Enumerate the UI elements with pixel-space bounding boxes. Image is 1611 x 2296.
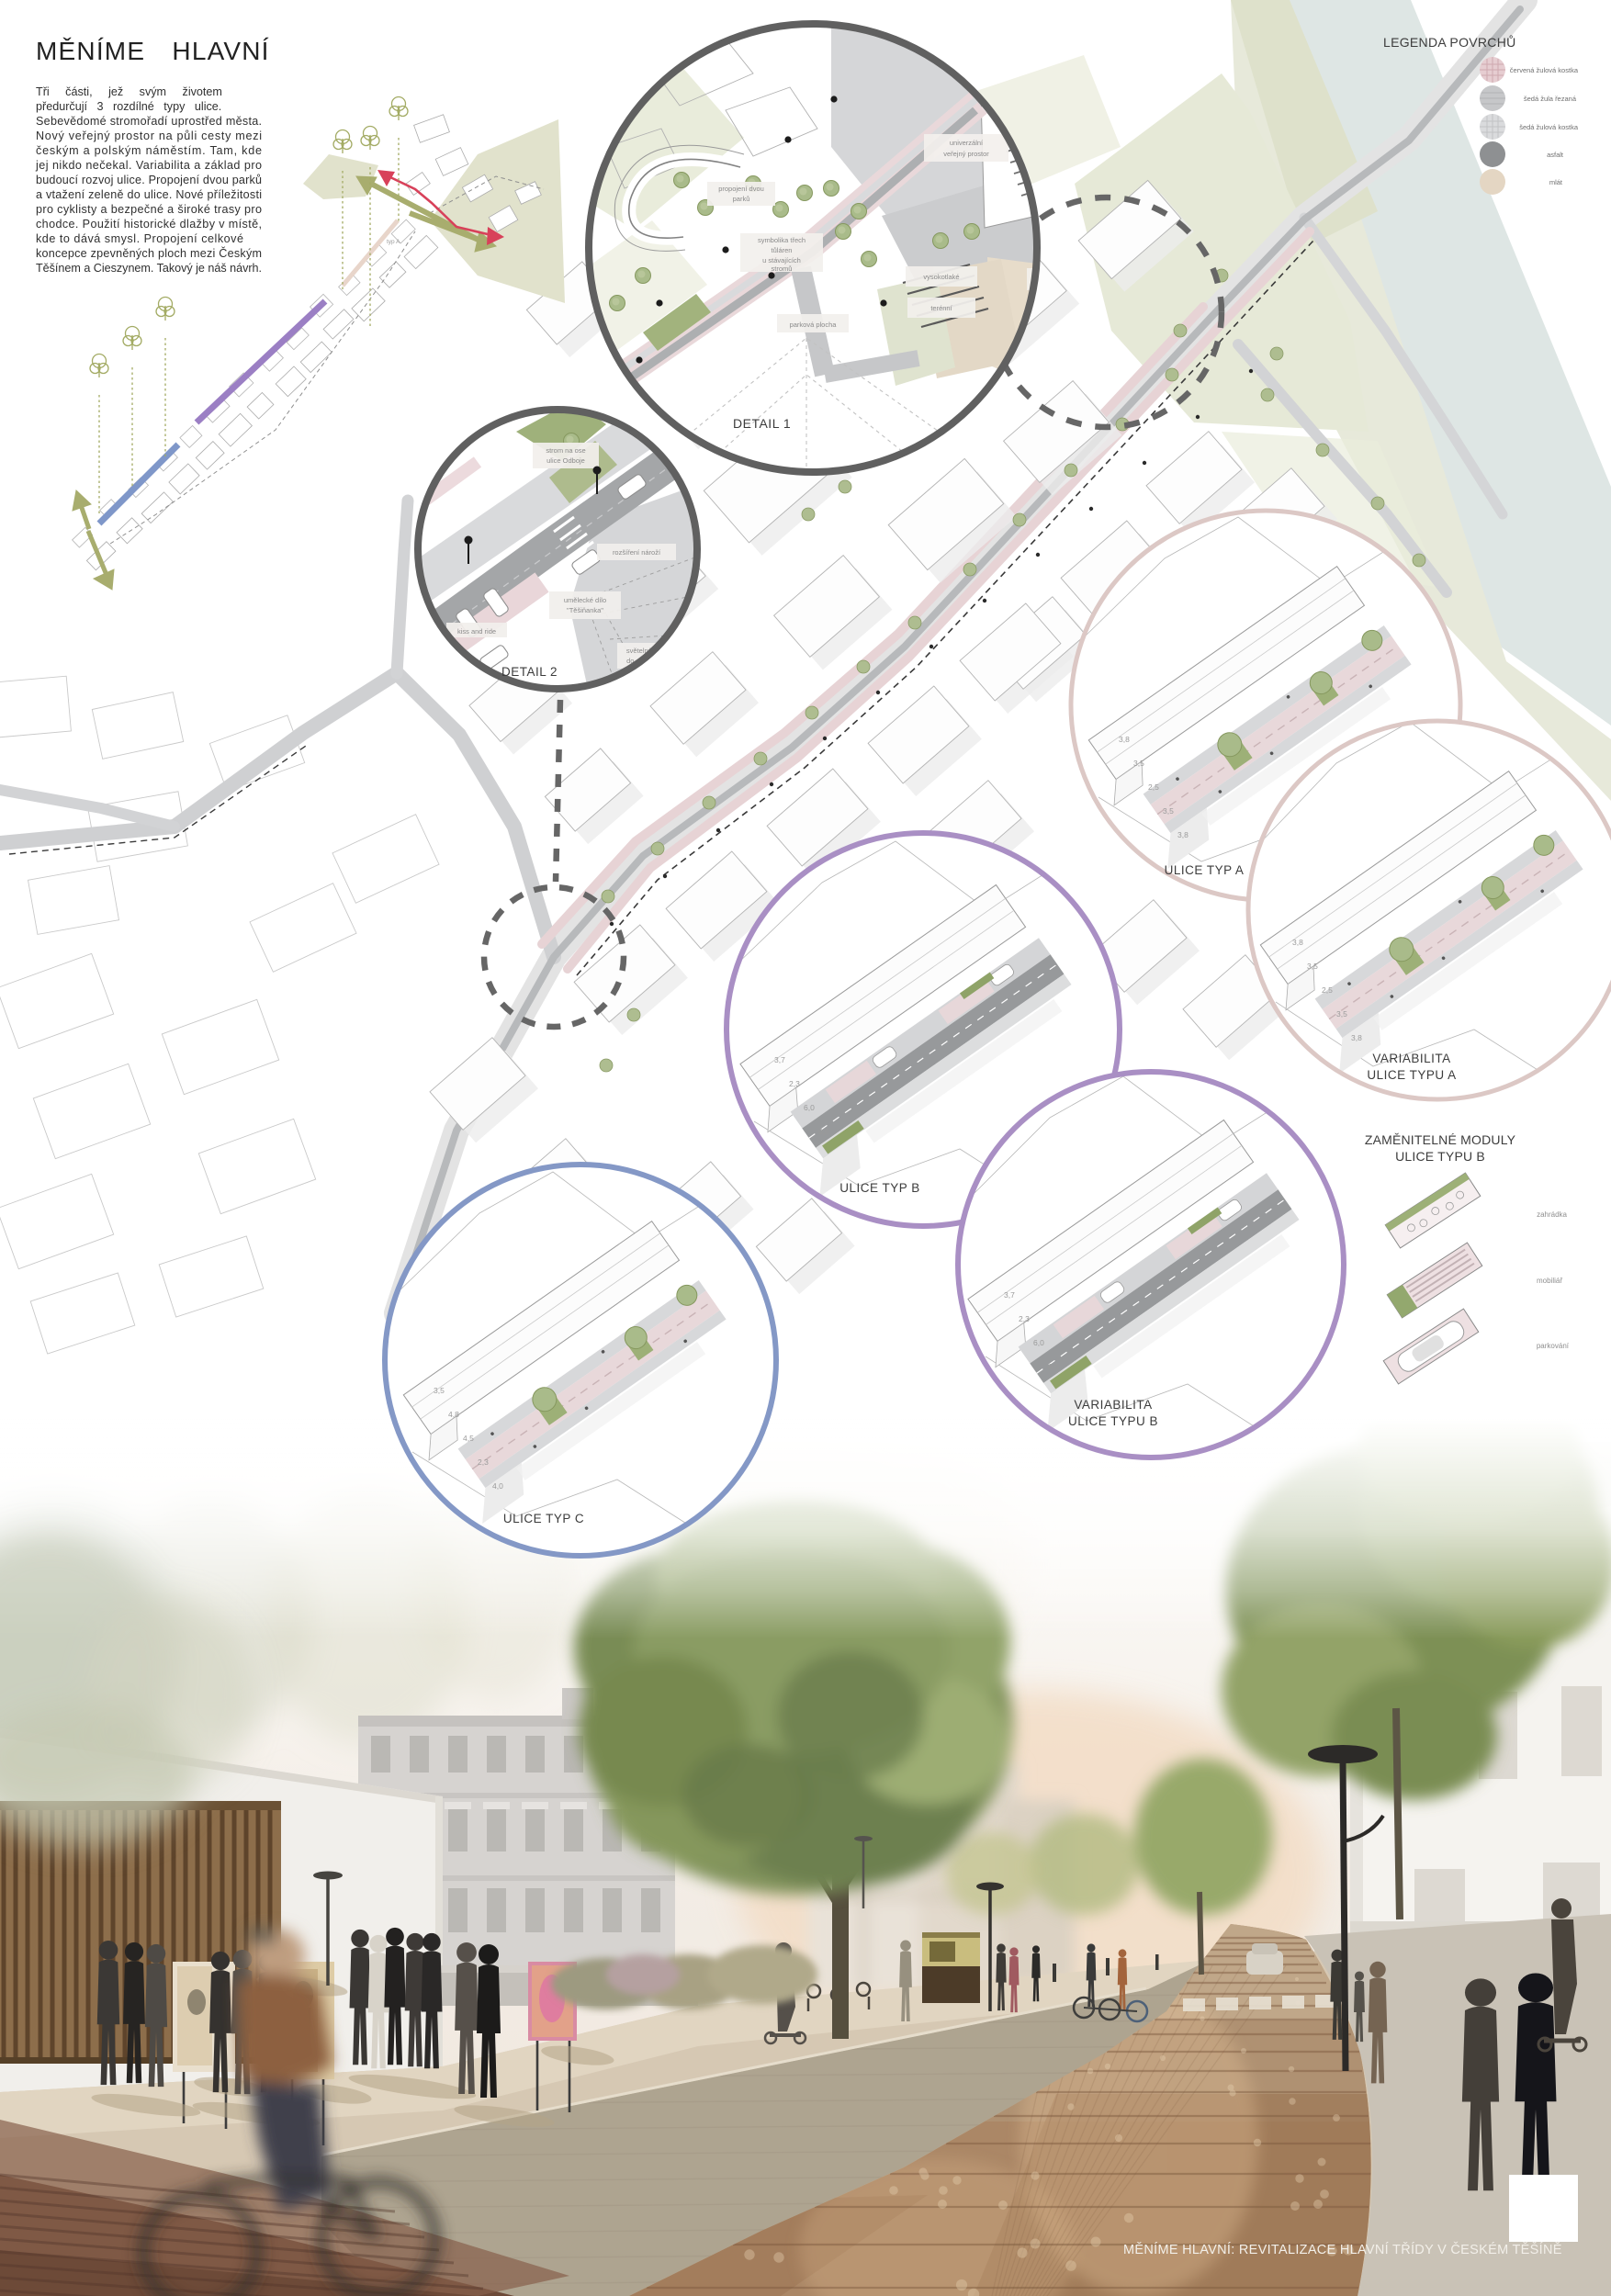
svg-text:ZAMĚNITELNÉ MODULY: ZAMĚNITELNÉ MODULY <box>1365 1132 1516 1147</box>
svg-text:typ A: typ A <box>387 239 400 245</box>
svg-text:a vtažení zeleně do ulice. Nov: a vtažení zeleně do ulice. Nové příležit… <box>36 188 262 201</box>
svg-text:6,0: 6,0 <box>818 1127 829 1136</box>
svg-text:ULICE TYPU B: ULICE TYPU B <box>1395 1149 1485 1164</box>
svg-text:chodce. Použití historické dla: chodce. Použití historické dlažby v míst… <box>36 218 262 231</box>
svg-text:u stávajících: u stávajících <box>762 256 801 264</box>
svg-text:4,0: 4,0 <box>492 1481 503 1491</box>
svg-text:umělecké dílo: umělecké dílo <box>564 596 606 604</box>
svg-text:budoucí rozvoj ulice. Propojen: budoucí rozvoj ulice. Propojení dvou par… <box>36 174 262 186</box>
svg-text:zahrádka: zahrádka <box>1537 1210 1567 1219</box>
svg-text:jej nikdo nečekal. Variabilita: jej nikdo nečekal. Variabilita a základ … <box>35 159 262 172</box>
svg-text:2,3: 2,3 <box>478 1458 489 1467</box>
svg-text:MĚNÍME HLAVNÍ: REVITALIZACE HL: MĚNÍME HLAVNÍ: REVITALIZACE HLAVNÍ TŘÍDY… <box>1123 2242 1562 2257</box>
svg-text:3,5: 3,5 <box>434 1386 445 1395</box>
svg-text:2,5: 2,5 <box>1322 985 1333 995</box>
svg-text:terénní: terénní <box>930 304 952 312</box>
svg-text:ulice Odboje: ulice Odboje <box>546 456 585 465</box>
svg-text:4,8: 4,8 <box>448 1410 459 1419</box>
svg-text:tůláren: tůláren <box>772 246 793 254</box>
svg-text:VARIABILITA: VARIABILITA <box>1074 1398 1152 1412</box>
svg-text:kde to dává smysl. Propojení c: kde to dává smysl. Propojení celkové <box>36 232 243 245</box>
svg-text:"Těšiňanka": "Těšiňanka" <box>567 606 603 614</box>
svg-text:6,0: 6,0 <box>1048 1362 1059 1371</box>
svg-text:3,7: 3,7 <box>774 1055 785 1064</box>
svg-text:3,5: 3,5 <box>1133 759 1144 768</box>
svg-text:asfalt: asfalt <box>1547 151 1564 159</box>
svg-text:3,8: 3,8 <box>1177 830 1189 839</box>
svg-text:ULICE TYP A: ULICE TYP A <box>1165 863 1245 877</box>
svg-text:DETAIL 1: DETAIL 1 <box>733 416 791 431</box>
svg-text:mlát: mlát <box>1549 178 1563 186</box>
svg-text:předurčují 3 rozdílné ty: předurčují 3 rozdílné typy ulice. <box>36 100 221 113</box>
svg-text:šedá žulová kostka: šedá žulová kostka <box>1519 123 1579 131</box>
svg-text:DETAIL 2: DETAIL 2 <box>501 665 558 679</box>
svg-text:univerzální: univerzální <box>950 139 984 147</box>
svg-text:kiss and ride: kiss and ride <box>457 627 496 636</box>
svg-text:veřejný prostor: veřejný prostor <box>943 150 989 158</box>
svg-text:2,3: 2,3 <box>789 1079 800 1088</box>
svg-text:rozšíření nároží: rozšíření nároží <box>613 548 661 557</box>
svg-text:koncepce zpevněných ploch mezi: koncepce zpevněných ploch mezi Českým <box>36 246 262 260</box>
svg-text:ULICE TYP B: ULICE TYP B <box>839 1181 920 1195</box>
svg-text:6,0: 6,0 <box>804 1103 815 1112</box>
svg-text:Sebevědomé stromořadí uprostře: Sebevědomé stromořadí uprostřed města. <box>36 115 262 128</box>
svg-text:3,5: 3,5 <box>1163 806 1174 816</box>
svg-text:parková plocha: parková plocha <box>790 321 838 329</box>
svg-text:červená žulová kostka: červená žulová kostka <box>1510 66 1579 74</box>
svg-text:6,0: 6,0 <box>1033 1338 1044 1347</box>
svg-text:3,5: 3,5 <box>1336 1009 1347 1019</box>
svg-text:MĚNÍME HLAVNÍ: MĚNÍME HLAVNÍ <box>36 37 270 65</box>
svg-text:3,5: 3,5 <box>1307 962 1318 971</box>
svg-text:Těšínem a Cieszynem. Takový je: Těšínem a Cieszynem. Takový je náš návrh… <box>36 262 262 275</box>
svg-text:strom na ose: strom na ose <box>546 446 585 455</box>
svg-text:3,8: 3,8 <box>1292 938 1303 947</box>
svg-text:4,5: 4,5 <box>463 1434 474 1443</box>
svg-text:ULICE TYPU A: ULICE TYPU A <box>1367 1068 1456 1082</box>
svg-text:šedá žula řezaná: šedá žula řezaná <box>1524 95 1577 103</box>
svg-text:mobiliář: mobiliář <box>1537 1277 1562 1285</box>
svg-text:Nový veřejný prostor na půli c: Nový veřejný prostor na půli cesty mezi <box>36 129 262 142</box>
svg-text:parků: parků <box>733 195 750 203</box>
svg-text:pro cyklisty a bezpečné a širo: pro cyklisty a bezpečné a široké trasy p… <box>36 203 262 216</box>
svg-text:3,8: 3,8 <box>1351 1033 1362 1042</box>
svg-text:symbolika třech: symbolika třech <box>758 236 805 244</box>
svg-text:vysokotlaké: vysokotlaké <box>923 273 959 281</box>
svg-text:Tři části, jež svý: Tři části, jež svým životem <box>36 85 222 98</box>
svg-text:českým a polským náměstím. Tam: českým a polským náměstím. Tam, kde <box>36 144 262 157</box>
svg-text:2,3: 2,3 <box>1019 1314 1030 1323</box>
svg-text:ULICE TYP C: ULICE TYP C <box>503 1512 584 1525</box>
svg-text:2,5: 2,5 <box>1148 782 1159 792</box>
svg-text:3,7: 3,7 <box>1004 1290 1015 1300</box>
svg-text:propojení dvou: propojení dvou <box>718 185 764 193</box>
svg-text:ULICE TYPU B: ULICE TYPU B <box>1068 1414 1158 1428</box>
svg-text:parkování: parkování <box>1537 1342 1570 1350</box>
svg-text:3,8: 3,8 <box>1119 735 1130 744</box>
svg-text:stromů: stromů <box>772 264 793 273</box>
svg-text:VARIABILITA: VARIABILITA <box>1372 1052 1450 1065</box>
svg-text:LEGENDA POVRCHŮ: LEGENDA POVRCHŮ <box>1383 34 1516 50</box>
